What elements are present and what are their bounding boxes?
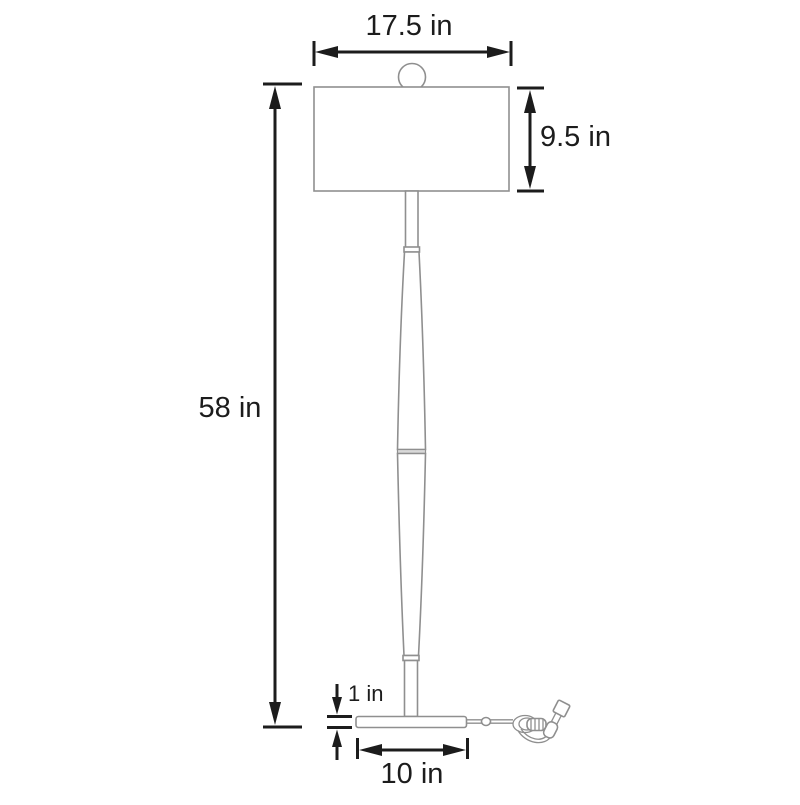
lamp-spindle-upper xyxy=(398,252,426,450)
shade-height-label: 9.5 in xyxy=(540,121,611,153)
lamp-lower-tube xyxy=(405,661,418,717)
base-width-label: 10 in xyxy=(381,758,444,790)
shade-width-label: 17.5 in xyxy=(365,10,452,42)
lamp-base xyxy=(356,717,467,728)
power-cord xyxy=(466,716,552,743)
lamp-upper-tube xyxy=(406,191,419,248)
lamp-spindle-lower xyxy=(398,454,426,656)
dimension-shade-height: 9.5 in xyxy=(517,88,611,191)
lamp-shade xyxy=(314,87,509,191)
base-thickness-label: 1 in xyxy=(348,681,383,706)
diagram-svg: 17.5 in 9.5 in 58 in 1 xyxy=(0,0,800,800)
cord-bead xyxy=(482,718,491,726)
dimension-shade-width: 17.5 in xyxy=(314,10,511,66)
power-plug xyxy=(541,700,570,740)
dimension-base-width: 10 in xyxy=(358,738,468,790)
dimension-total-height: 58 in xyxy=(199,84,302,727)
lamp-dimension-diagram: 17.5 in 9.5 in 58 in 1 xyxy=(0,0,800,800)
floor-lamp-drawing xyxy=(314,64,570,743)
total-height-label: 58 in xyxy=(199,392,262,424)
